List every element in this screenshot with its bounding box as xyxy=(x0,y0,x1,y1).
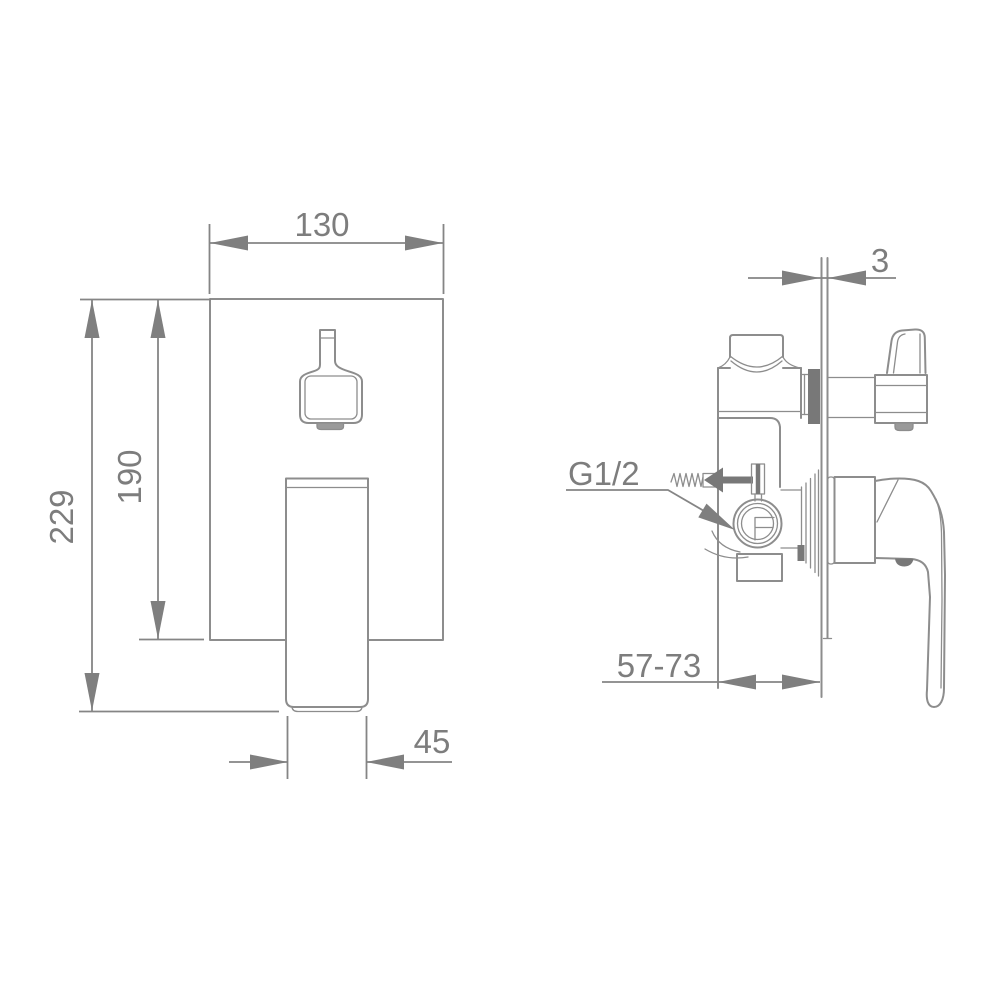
front-view: 130 229 190 45 xyxy=(43,206,452,779)
diverter-knob-inner-line xyxy=(305,376,357,419)
technical-drawing-canvas: 130 229 190 45 xyxy=(0,0,1000,1000)
arrowhead-bottom xyxy=(151,601,166,639)
arrowhead-left xyxy=(210,236,248,251)
side-lever-handle xyxy=(828,477,946,707)
knob-stem-lines xyxy=(828,378,875,418)
side-valve-body xyxy=(671,335,820,688)
escutcheon-ring xyxy=(828,477,835,564)
arrowhead-right xyxy=(828,271,866,286)
dim-label-install-depth: 57-73 xyxy=(617,647,701,684)
stub-shoulder-left xyxy=(718,357,730,368)
screw-tip-dark xyxy=(704,468,723,493)
side-view: 3 57-73 G1/2 xyxy=(566,242,945,707)
knob-bottom-tab xyxy=(895,423,913,431)
screw-threads xyxy=(671,474,703,487)
handle-underside-notch xyxy=(895,559,914,567)
arrowhead-left xyxy=(718,675,756,690)
handle-hub xyxy=(835,477,876,563)
arrowhead-right xyxy=(366,755,404,770)
handle-lever-outline xyxy=(875,479,945,708)
front-lever-handle xyxy=(286,479,368,712)
dim-overall-height: 229 xyxy=(43,300,279,712)
diverter-knob-bottom-tab xyxy=(317,423,344,430)
dim-plate-width: 130 xyxy=(210,206,444,294)
arrowhead-top xyxy=(151,300,166,338)
port-inner-circle xyxy=(742,508,774,540)
knob-base-inner-lines xyxy=(875,386,927,413)
dim-plate-height: 190 xyxy=(111,300,204,640)
handle-outline xyxy=(286,479,368,708)
port-outer-circle xyxy=(734,500,782,548)
dim-label-overall-height: 229 xyxy=(43,489,80,544)
leader-arrowhead xyxy=(698,504,735,530)
dim-handle-width: 45 xyxy=(229,716,452,779)
dim-install-depth: 57-73 xyxy=(602,647,820,690)
arrowhead-bottom xyxy=(85,673,100,711)
collar-dark-detail xyxy=(798,545,805,561)
front-diverter-knob xyxy=(300,330,362,430)
stem-flange-dark xyxy=(808,369,820,424)
arrowhead-right xyxy=(405,236,443,251)
port-inner-mark xyxy=(755,518,774,541)
stub-shoulder-right xyxy=(783,357,800,368)
handle-face-line xyxy=(877,480,898,522)
knob-lever-inner-line xyxy=(894,334,906,373)
side-diverter-knob xyxy=(828,329,927,430)
dim-label-plate-width: 130 xyxy=(294,206,349,243)
dim-label-plate-height: 190 xyxy=(111,449,148,504)
thread-callout: G1/2 xyxy=(566,455,735,530)
technical-drawing-page: 130 229 190 45 xyxy=(0,0,1000,1000)
arrowhead-right xyxy=(782,675,820,690)
handle-tail-inner-line xyxy=(936,499,942,688)
thread-size-label: G1/2 xyxy=(568,455,640,492)
dim-label-handle-width: 45 xyxy=(414,723,451,760)
outlet-pipe-lines xyxy=(781,490,801,548)
arrowhead-top xyxy=(85,300,100,338)
port-ring-circle xyxy=(738,504,778,544)
top-pipe-stub xyxy=(730,335,783,357)
knob-base-outline xyxy=(875,375,927,423)
arrowhead-left xyxy=(782,271,820,286)
arrowhead-left xyxy=(250,755,288,770)
dim-label-plate-thickness: 3 xyxy=(871,242,889,279)
